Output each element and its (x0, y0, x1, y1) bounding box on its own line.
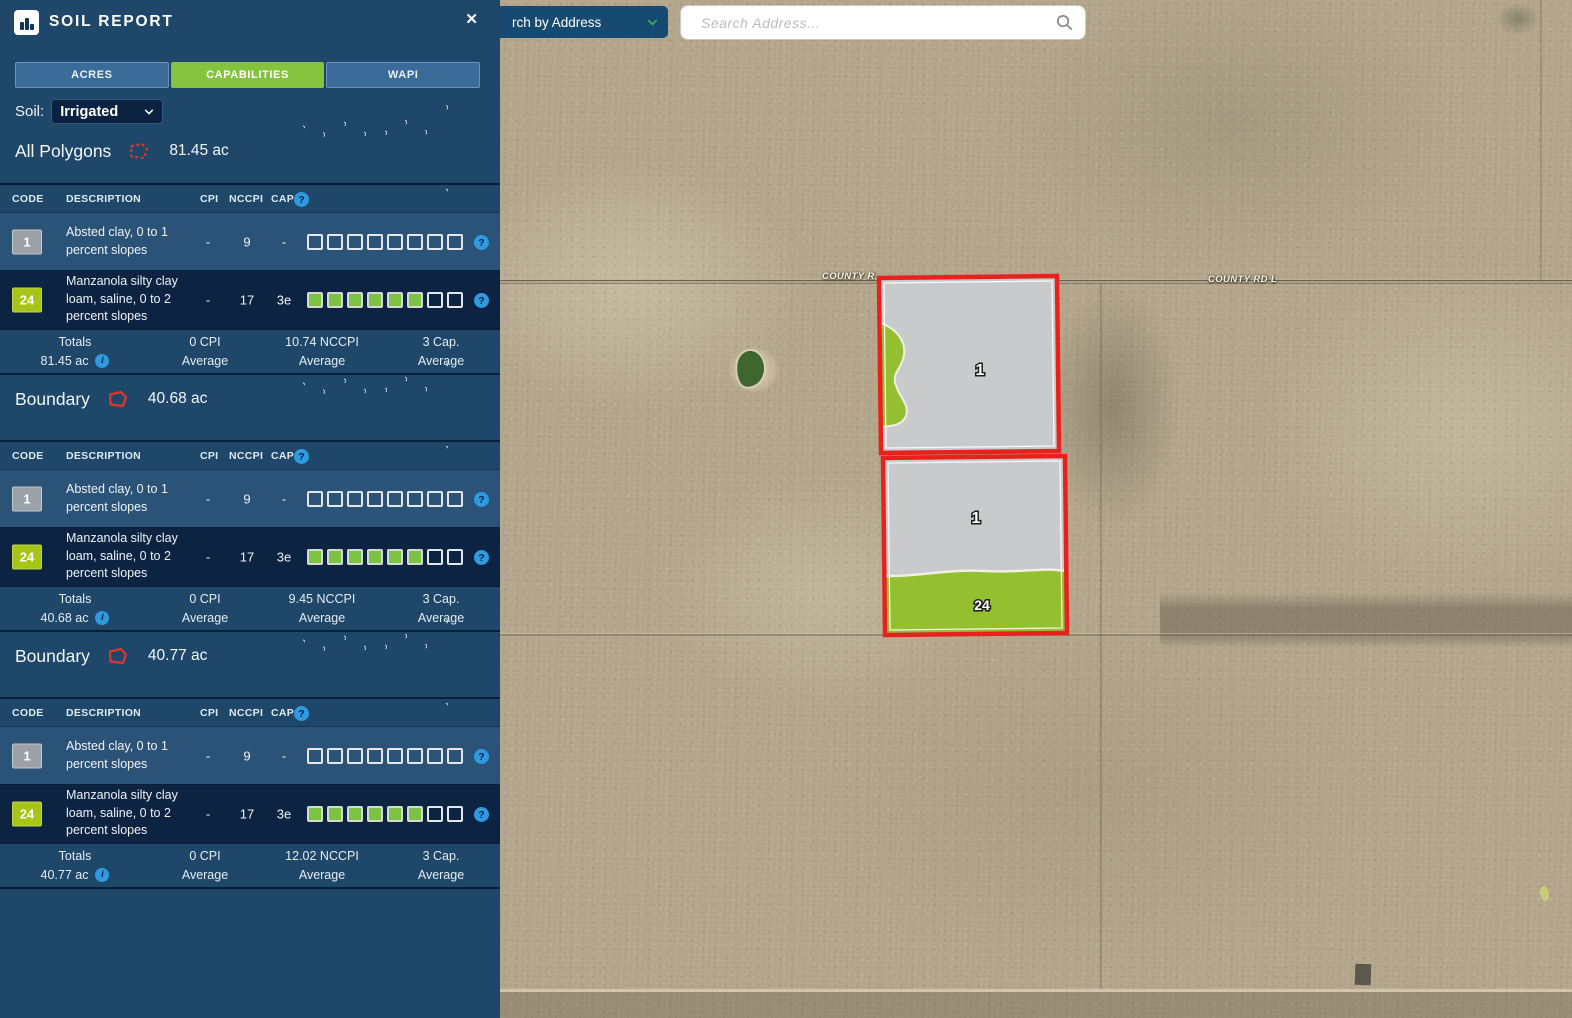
capability-box-filled (307, 806, 323, 822)
section-acres: 40.68 ac (148, 390, 207, 408)
capability-box-empty (447, 806, 463, 822)
section-title-row: All Polygons 81.45 ac (0, 136, 500, 166)
totals-acres: Totals 40.68 aci (0, 587, 150, 630)
map-dark-band (1160, 592, 1572, 648)
capability-checkboxes (307, 549, 463, 565)
nccpi-value: 17 (228, 292, 266, 307)
cpi-value: - (193, 234, 223, 249)
soil-sections: All Polygons 81.45 ac CODE DESCRIPTION C… (0, 124, 500, 889)
section-title: Boundary (15, 646, 90, 667)
panel-header: SOIL REPORT ✕ (0, 0, 500, 45)
soil-label: Soil: (15, 103, 44, 120)
soil-selector-row: Soil: Irrigated (15, 99, 163, 124)
bottom-road-line (500, 989, 1572, 992)
help-icon[interactable]: ? (474, 749, 489, 764)
capability-box-empty (427, 491, 443, 507)
cpi-value: - (193, 292, 223, 307)
totals-cpi: 0 CPIAverage (150, 330, 260, 373)
soil-description: Manzanola silty clay loam, saline, 0 to … (66, 271, 196, 328)
soil-table-row[interactable]: 1Absted clay, 0 to 1 percent slopes-9-? (0, 212, 500, 270)
help-icon[interactable]: ? (474, 492, 489, 507)
help-icon[interactable]: ? (294, 706, 309, 721)
soil-rows: 1Absted clay, 0 to 1 percent slopes-9-?2… (0, 469, 500, 585)
panel-tabs: ACRES CAPABILITIES WAPI (15, 62, 480, 88)
totals-row: Totals 81.45 aci 0 CPIAverage 10.74 NCCP… (0, 328, 500, 375)
tab-wapi[interactable]: WAPI (326, 62, 480, 88)
capability-box-empty (387, 234, 403, 250)
panel-title: SOIL REPORT (49, 13, 174, 31)
capability-box-filled (307, 549, 323, 565)
capability-box-empty (327, 748, 343, 764)
soil-code-badge: 1 (12, 743, 42, 768)
info-icon[interactable]: i (95, 868, 109, 882)
table-header-row: CODE DESCRIPTION CPI NCCPI CAP ? Wildlif… (0, 440, 500, 469)
totals-cap: 3 Cap.Average (385, 330, 497, 373)
totals-acres: Totals 40.77 aci (0, 844, 150, 887)
cap-value: - (267, 491, 301, 506)
cap-value: 3e (267, 549, 301, 564)
soil-code-badge: 24 (12, 287, 42, 312)
capability-box-empty (367, 748, 383, 764)
col-header-cap: CAP (271, 193, 294, 205)
capability-box-filled (367, 806, 383, 822)
section-title-row: Boundary 40.68 ac (0, 384, 500, 414)
cpi-value: - (193, 491, 223, 506)
section-title-row: Boundary 40.77 ac (0, 641, 500, 671)
soil-table-row[interactable]: 1Absted clay, 0 to 1 percent slopes-9-? (0, 726, 500, 784)
small-building (1355, 964, 1372, 986)
section-acres: 40.77 ac (148, 647, 207, 665)
capability-box-empty (447, 491, 463, 507)
satellite-map[interactable]: COUNTY R COUNTY RD L 1 1 24 rch by Addre… (500, 0, 1572, 1018)
capability-box-empty (447, 748, 463, 764)
capability-box-filled (387, 292, 403, 308)
totals-nccpi: 9.45 NCCPIAverage (262, 587, 382, 630)
totals-acres: Totals 81.45 aci (0, 330, 150, 373)
capability-box-empty (307, 234, 323, 250)
col-header-cap: CAP (271, 450, 294, 462)
nccpi-value: 17 (228, 549, 266, 564)
capability-box-filled (347, 549, 363, 565)
parcel-top-fill[interactable] (879, 276, 1059, 453)
soil-report-panel: SOIL REPORT ✕ ACRES CAPABILITIES WAPI So… (0, 0, 500, 1018)
capability-box-empty (427, 292, 443, 308)
col-header-nccpi: NCCPI (229, 707, 263, 719)
soil-select[interactable]: Irrigated (51, 99, 163, 124)
cap-value: - (267, 748, 301, 763)
capability-box-filled (327, 292, 343, 308)
nccpi-value: 9 (228, 491, 266, 506)
soil-description: Manzanola silty clay loam, saline, 0 to … (66, 785, 196, 842)
capability-checkboxes (307, 806, 463, 822)
tab-acres[interactable]: ACRES (15, 62, 169, 88)
capability-box-empty (427, 549, 443, 565)
totals-cap: 3 Cap.Average (385, 587, 497, 630)
totals-row: Totals 40.68 aci 0 CPIAverage 9.45 NCCPI… (0, 585, 500, 632)
totals-cpi: 0 CPIAverage (150, 844, 260, 887)
soil-code-badge: 1 (12, 229, 42, 254)
search-by-address-dropdown[interactable]: rch by Address (500, 6, 668, 38)
col-header-code: CODE (12, 450, 44, 462)
capability-box-empty (327, 491, 343, 507)
capability-box-empty (327, 234, 343, 250)
bar-chart-icon (14, 10, 39, 35)
section-acres: 81.45 ac (169, 142, 228, 160)
polygon-icon (127, 142, 151, 161)
help-icon[interactable]: ? (294, 192, 309, 207)
cpi-value: - (193, 549, 223, 564)
small-green-patch (1539, 885, 1550, 901)
search-by-address-label: rch by Address (512, 15, 647, 30)
close-icon[interactable]: ✕ (465, 12, 478, 27)
capability-box-filled (407, 292, 423, 308)
chevron-down-icon (144, 107, 154, 117)
search-address-input[interactable] (680, 5, 1086, 40)
cap-value: 3e (267, 806, 301, 821)
capability-box-filled (347, 806, 363, 822)
capability-box-filled (367, 292, 383, 308)
help-icon[interactable]: ? (294, 449, 309, 464)
cap-value: 3e (267, 292, 301, 307)
col-header-description: DESCRIPTION (66, 193, 141, 205)
col-header-nccpi: NCCPI (229, 450, 263, 462)
capability-box-filled (367, 549, 383, 565)
info-icon[interactable]: i (95, 611, 109, 625)
capability-box-empty (407, 491, 423, 507)
parcel-label: 1 (972, 510, 981, 527)
help-icon[interactable]: ? (474, 293, 489, 308)
capability-checkboxes (307, 234, 463, 250)
soil-code-badge: 1 (12, 486, 42, 511)
road-label-right: COUNTY RD L (1208, 274, 1277, 285)
soil-table-row[interactable]: 1Absted clay, 0 to 1 percent slopes-9-? (0, 469, 500, 527)
col-header-cap: CAP (271, 707, 294, 719)
col-header-cpi: CPI (200, 193, 218, 205)
soil-description: Manzanola silty clay loam, saline, 0 to … (66, 528, 196, 585)
capability-box-empty (427, 748, 443, 764)
parcel-label: 1 (976, 362, 985, 379)
capability-checkboxes (307, 748, 463, 764)
table-header-row: CODE DESCRIPTION CPI NCCPI CAP ? Wildlif… (0, 183, 500, 212)
cpi-value: - (193, 806, 223, 821)
capability-box-empty (307, 748, 323, 764)
col-header-cpi: CPI (200, 707, 218, 719)
faint-vertical-line (1540, 0, 1542, 282)
parcel-label: 24 (974, 597, 990, 613)
info-icon[interactable]: i (95, 354, 109, 368)
soil-description: Absted clay, 0 to 1 percent slopes (66, 470, 196, 527)
capability-box-empty (347, 234, 363, 250)
capability-box-empty (307, 491, 323, 507)
table-header-row: CODE DESCRIPTION CPI NCCPI CAP ? Wildlif… (0, 697, 500, 726)
faint-vertical-line (1100, 284, 1102, 990)
capability-box-empty (367, 234, 383, 250)
tab-capabilities[interactable]: CAPABILITIES (171, 62, 325, 88)
help-icon[interactable]: ? (474, 550, 489, 565)
capability-box-empty (347, 491, 363, 507)
nccpi-value: 9 (228, 748, 266, 763)
capability-box-filled (407, 806, 423, 822)
capability-box-filled (327, 549, 343, 565)
section-title: Boundary (15, 389, 90, 410)
chevron-down-icon (647, 17, 658, 28)
cpi-value: - (193, 748, 223, 763)
col-header-code: CODE (12, 707, 44, 719)
capability-checkboxes (307, 292, 463, 308)
totals-cap: 3 Cap.Average (385, 844, 497, 887)
help-icon[interactable]: ? (474, 807, 489, 822)
soil-table-row[interactable]: 24Manzanola silty clay loam, saline, 0 t… (0, 270, 500, 328)
soil-description: Absted clay, 0 to 1 percent slopes (66, 727, 196, 784)
soil-table-row[interactable]: 24Manzanola silty clay loam, saline, 0 t… (0, 784, 500, 842)
capability-box-empty (447, 234, 463, 250)
capability-box-empty (447, 292, 463, 308)
col-header-code: CODE (12, 193, 44, 205)
capability-box-filled (387, 549, 403, 565)
totals-nccpi: 12.02 NCCPIAverage (262, 844, 382, 887)
soil-report-app: COUNTY R COUNTY RD L 1 1 24 rch by Addre… (0, 0, 1572, 1018)
col-header-description: DESCRIPTION (66, 707, 141, 719)
capability-box-empty (427, 234, 443, 250)
capability-box-filled (327, 806, 343, 822)
nccpi-value: 17 (228, 806, 266, 821)
soil-select-value: Irrigated (60, 104, 144, 120)
soil-code-badge: 24 (12, 801, 42, 826)
capability-box-empty (407, 234, 423, 250)
soil-description: Absted clay, 0 to 1 percent slopes (66, 213, 196, 270)
col-header-cpi: CPI (200, 450, 218, 462)
capability-box-filled (347, 292, 363, 308)
soil-rows: 1Absted clay, 0 to 1 percent slopes-9-?2… (0, 212, 500, 328)
polygon-icon (106, 390, 130, 409)
soil-section: Boundary 40.68 ac CODE DESCRIPTION CPI N… (0, 384, 500, 632)
soil-parcels[interactable]: 1 1 24 (860, 260, 1090, 650)
pond (735, 349, 766, 388)
capability-box-empty (407, 748, 423, 764)
capability-checkboxes (307, 491, 463, 507)
capability-box-empty (427, 806, 443, 822)
soil-section: All Polygons 81.45 ac CODE DESCRIPTION C… (0, 136, 500, 375)
totals-row: Totals 40.77 aci 0 CPIAverage 12.02 NCCP… (0, 842, 500, 889)
capability-box-filled (387, 806, 403, 822)
capability-box-empty (387, 491, 403, 507)
soil-table-row[interactable]: 24Manzanola silty clay loam, saline, 0 t… (0, 527, 500, 585)
totals-nccpi: 10.74 NCCPIAverage (262, 330, 382, 373)
help-icon[interactable]: ? (474, 235, 489, 250)
col-header-nccpi: NCCPI (229, 193, 263, 205)
capability-box-empty (367, 491, 383, 507)
map-dark-corner (1495, 2, 1541, 36)
search-icon[interactable] (1055, 13, 1074, 32)
totals-cpi: 0 CPIAverage (150, 587, 260, 630)
soil-section: Boundary 40.77 ac CODE DESCRIPTION CPI N… (0, 641, 500, 889)
col-header-description: DESCRIPTION (66, 450, 141, 462)
capability-box-filled (407, 549, 423, 565)
polygon-icon (106, 647, 130, 666)
capability-box-empty (347, 748, 363, 764)
cap-value: - (267, 234, 301, 249)
search-address-wrap (680, 5, 1086, 40)
nccpi-value: 9 (228, 234, 266, 249)
section-title: All Polygons (15, 141, 111, 162)
capability-box-empty (447, 549, 463, 565)
bottom-dark-band (500, 992, 1572, 1018)
capability-box-empty (387, 748, 403, 764)
soil-rows: 1Absted clay, 0 to 1 percent slopes-9-?2… (0, 726, 500, 842)
capability-box-filled (307, 292, 323, 308)
soil-code-badge: 24 (12, 544, 42, 569)
